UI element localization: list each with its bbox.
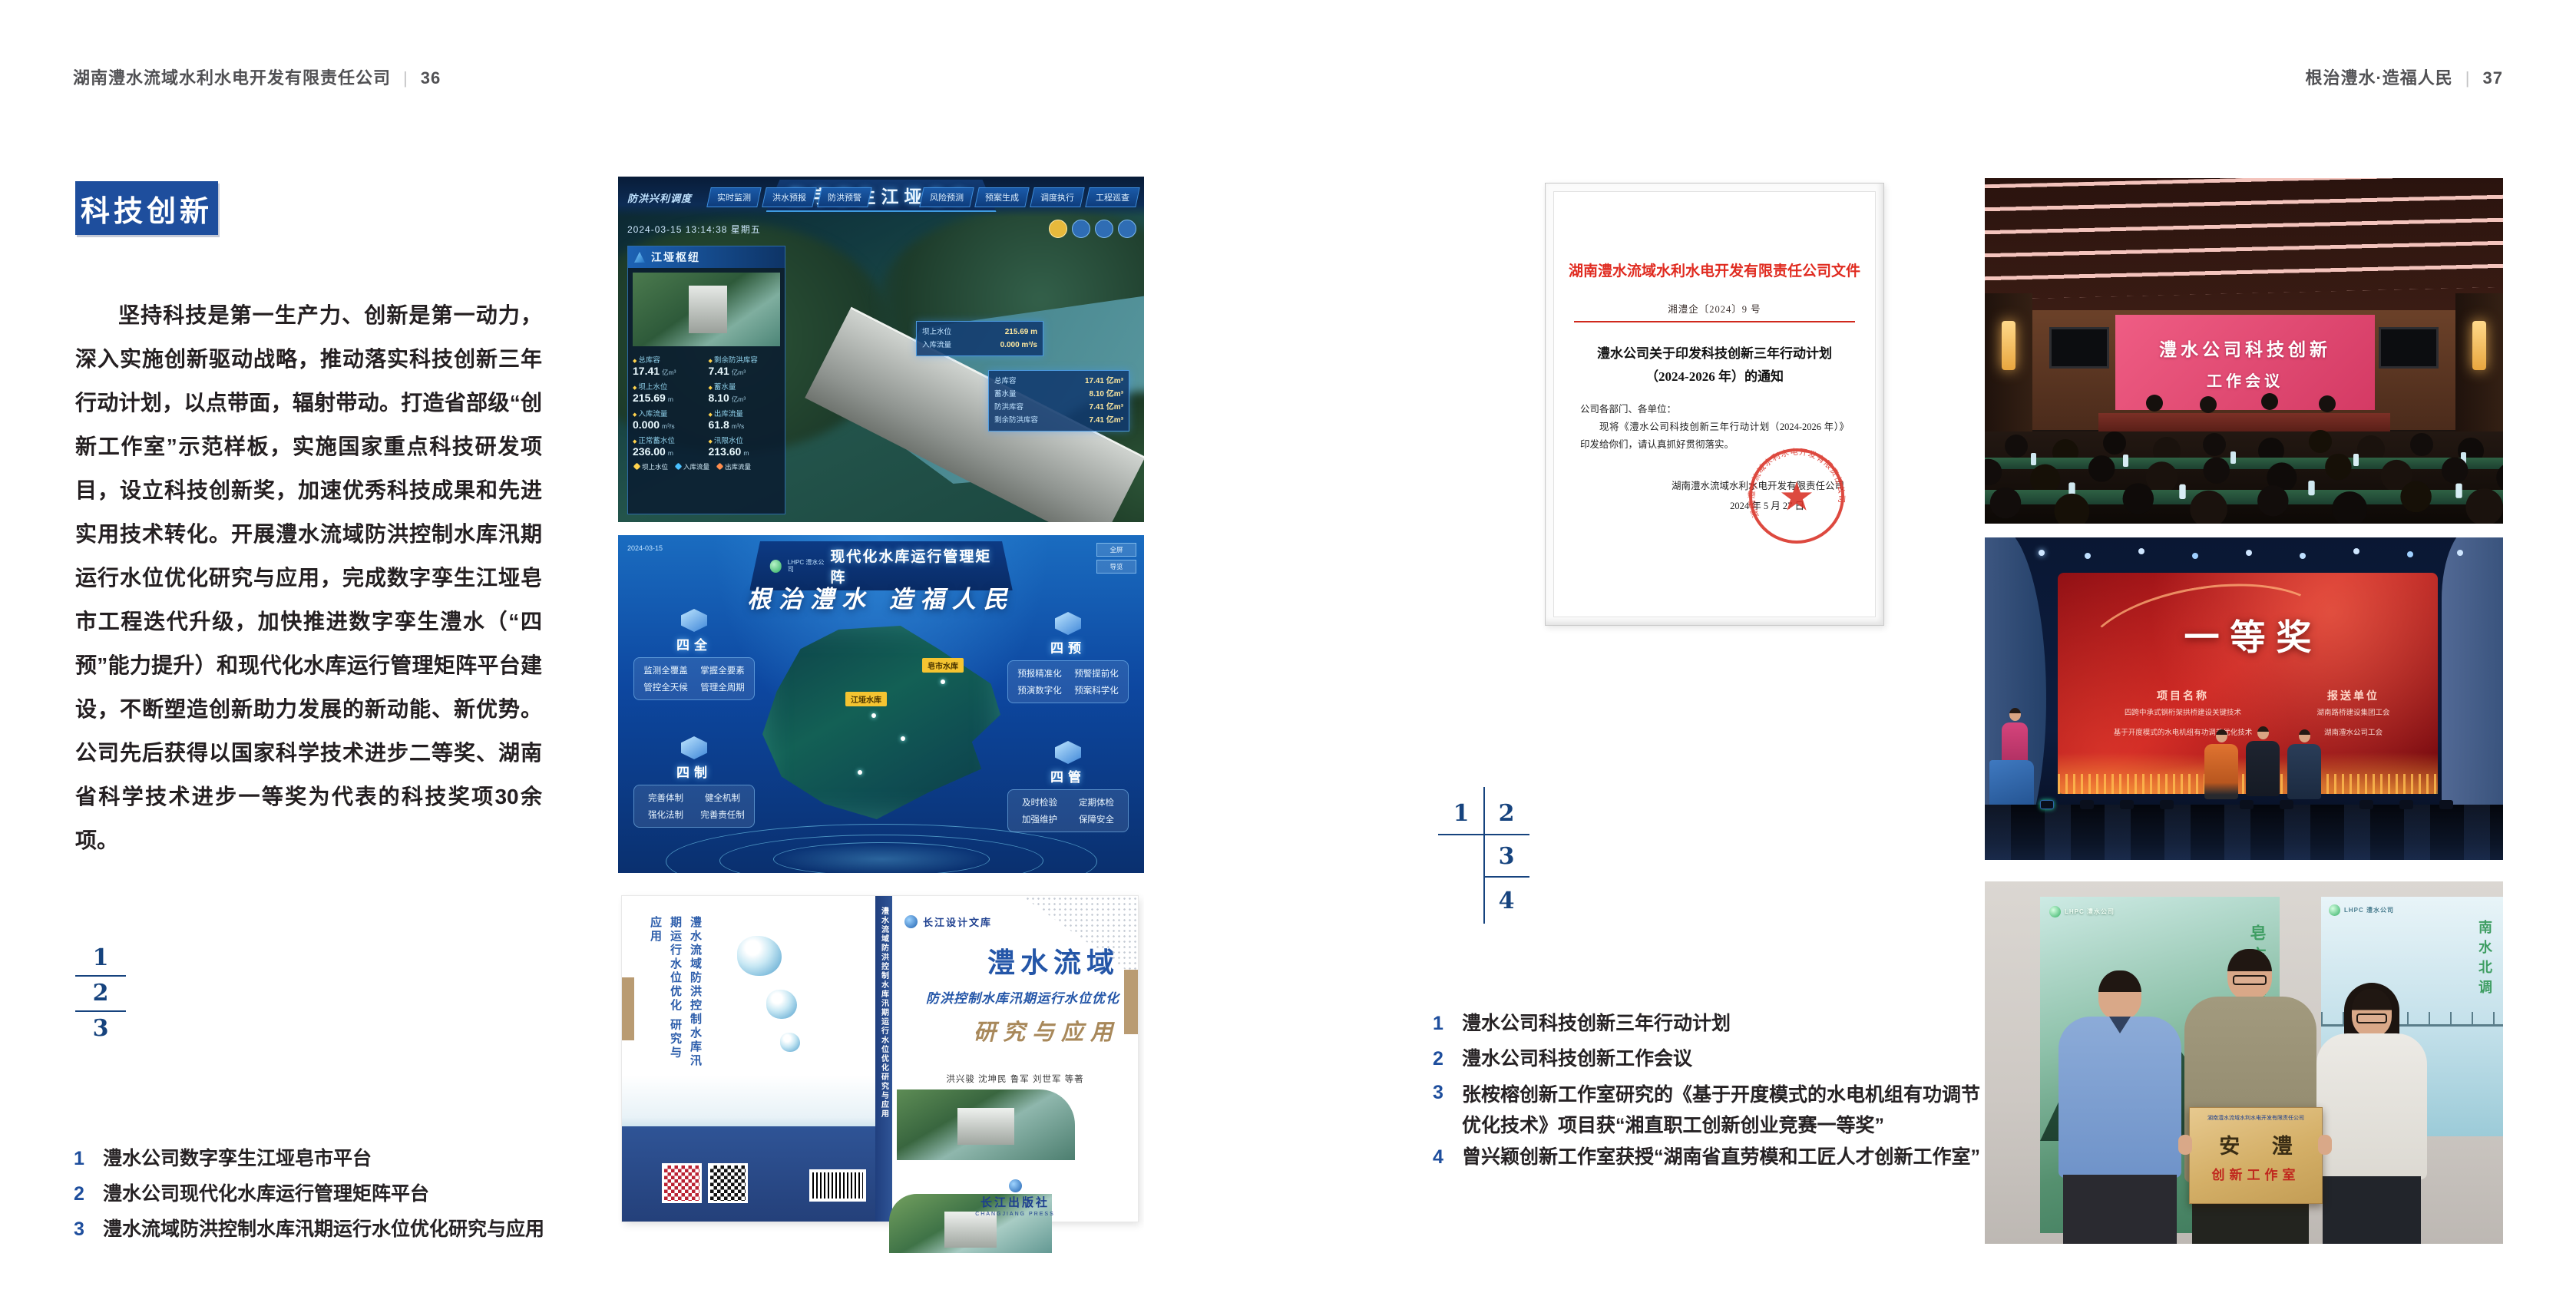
legend-dot (633, 463, 641, 471)
person-body (2058, 1017, 2181, 1178)
left-caption-2: 2 澧水公司现代化水库运行管理矩阵平台 (74, 1181, 429, 1207)
hub-chart-legend: 坝上水位 入库流量 出库流量 (628, 461, 785, 473)
publisher-name: 长江出版社 (980, 1194, 1050, 1210)
plaque-header: 湖南澧水流域水利水电开发有限责任公司 (2190, 1114, 2322, 1122)
poster-calligraphy: 南水北调 (2474, 920, 2494, 1000)
document-number: 湘澧企〔2024〕9 号 (1554, 301, 1875, 316)
figure-digital-twin-platform: 数字孪生江垭皂市 防洪兴利调度 实时监测 洪水预报 防洪预警 风险预测 预案生成… (618, 177, 1144, 522)
stat-upstream-level: 坝上水位215.69m (633, 381, 705, 404)
wall-tv-screen (2379, 327, 2439, 369)
reservoir-marker-dot (901, 736, 905, 741)
person-head (2216, 729, 2227, 742)
hub-panel-header: 江垭枢纽 (628, 246, 785, 268)
publisher-logo-icon (1009, 1179, 1022, 1192)
tab-plan-generation: 预案生成 (974, 187, 1030, 207)
person-body (2204, 744, 2238, 799)
magazine-spread: 湖南澧水流域水利水电开发有限责任公司|36 科技创新 坚持科技是第一生产力、创新… (0, 0, 2576, 1306)
right-caption-3: 3 张桉榕创新工作室研究的《基于开度模式的水电机组有功调节 优化技术》项目获“湘… (1433, 1080, 1999, 1141)
wall-lamp (2002, 321, 2015, 370)
lhpc-logo (769, 560, 782, 573)
locator-divider (1438, 834, 1529, 835)
caption-text: 澧水公司现代化水库运行管理矩阵平台 (103, 1181, 429, 1207)
locate-icon (1095, 220, 1113, 238)
dashboard-top-bar: 数字孪生江垭皂市 防洪兴利调度 实时监测 洪水预报 防洪预警 风险预测 预案生成… (618, 177, 1144, 217)
stat-remaining-flood-capacity: 剩余防洪库容7.41亿m³ (709, 354, 781, 377)
press-logo-icon (904, 915, 918, 928)
locator-number: 1 (1448, 797, 1474, 831)
stage-floor (1985, 805, 2503, 860)
figure-official-document: 湖南澧水流域水利水电开发有限责任公司文件 湘澧企〔2024〕9 号 澧水公司关于… (1545, 183, 1884, 626)
person-body (2246, 741, 2280, 796)
green-desk-row (1985, 458, 2503, 469)
qr-code (708, 1163, 748, 1203)
module-label: 防洪兴利调度 (627, 190, 692, 205)
awardee-navy (2287, 729, 2321, 799)
person-head (2352, 989, 2392, 1037)
stat-storage: 蓄水量8.10亿m³ (709, 381, 781, 404)
left-caption-3: 3 澧水流域防洪控制水库汛期运行水位优化研究与应用 (74, 1216, 544, 1242)
right-header-title: 根治澧水·造福人民 (2305, 68, 2452, 88)
water-droplet (737, 936, 782, 976)
figure-matrix-platform: 2024-03-15 全屏 导览 LHPC 澧水公司 现代化水库运行管理矩阵 根… (618, 535, 1144, 873)
stat-flood-limit-level: 汛限水位213.60m (709, 435, 781, 458)
dashboard-tabs-left: 实时监测 洪水预报 防洪预警 (709, 187, 870, 207)
lhpc-logo: LHPC 澧水公司 (2329, 904, 2394, 916)
book-spine: 澧水流域防洪控制水库汛期运行水位优化研究与应用 (875, 896, 892, 1222)
stat-normal-level: 正常蓄水位236.00m (633, 435, 705, 458)
holding-hand (2178, 1135, 2192, 1155)
matrix-group-siquan: 四全 监测全覆盖掌握全要素 管控全天候管理全周期 (633, 609, 755, 700)
left-page-header: 湖南澧水流域水利水电开发有限责任公司|36 (73, 64, 441, 89)
tab-dispatch-execution: 调度执行 (1030, 187, 1085, 207)
stage-spotlights (2039, 550, 2045, 556)
tour-button: 导览 (1096, 560, 1136, 574)
green-desk-row (1985, 490, 2503, 504)
series-logo: 长江设计文库 (904, 914, 992, 929)
matrix-toolbar: 全屏 导览 (1096, 543, 1136, 577)
caption-text: 曾兴颖创新工作室获授“湖南省直劳模和工匠人才创新工作室” (1462, 1144, 1980, 1170)
cube-icon (681, 736, 707, 759)
caption-number: 3 (74, 1216, 91, 1242)
floor-reflections (1985, 805, 2503, 860)
water-bottles (2068, 482, 2075, 497)
right-caption-4: 4 曾兴颖创新工作室获授“湖南省直劳模和工匠人才创新工作室” (1433, 1144, 1980, 1170)
seal-star-icon (1781, 481, 1812, 511)
rostrum-table (2098, 413, 2390, 431)
front-cover-titles: 澧水流域 防洪控制水库汛期运行水位优化 研究与应用 (900, 941, 1119, 1046)
award-project-column: 项目名称 四跨中承式钢桁架拱桥建设关键技术 基于开度模式的水电机组有功调节优化技… (2095, 688, 2271, 743)
caption-text: 澧水公司数字孪生江垭皂市平台 (103, 1146, 372, 1172)
caption-number: 2 (1433, 1046, 1450, 1072)
audience-area (1985, 431, 2503, 524)
matrix-datetime: 2024-03-15 (627, 544, 663, 552)
reservoir-marker-dot (941, 679, 945, 684)
dam-shape (689, 286, 727, 332)
caption-number: 1 (1433, 1010, 1450, 1037)
glasses-icon (2356, 1013, 2387, 1023)
red-rule (1574, 321, 1855, 322)
locator-number: 1 (75, 941, 126, 975)
section-title: 科技创新 (75, 181, 218, 235)
book-title-main: 澧水流域 (900, 941, 1119, 980)
matrix-group-sizhi: 四制 完善体制健全机制 强化法制完善责任制 (633, 736, 755, 828)
locator-number: 2 (1493, 797, 1519, 831)
reservoir-marker-dot (871, 713, 876, 718)
right-header-separator: | (2465, 68, 2471, 88)
wall-tv-screen (2049, 327, 2109, 369)
right-page-number: 37 (2483, 68, 2503, 88)
person-trousers (2323, 1176, 2421, 1244)
figure-award-ceremony-photo: 一等奖 项目名称 四跨中承式钢桁架拱桥建设关键技术 基于开度模式的水电机组有功调… (1985, 537, 2503, 860)
left-caption-1: 1 澧水公司数字孪生江垭皂市平台 (74, 1146, 372, 1172)
award-title: 一等奖 (2058, 610, 2438, 660)
dashboard-tabs-right: 风险预测 预案生成 调度执行 工程巡查 (921, 187, 1138, 207)
book-spread: 澧水流域防洪控制水库汛期运行水位优化 研究与应用 澧水流域防洪控制水库汛期运行水… (622, 896, 1138, 1222)
map-popup-levels: 坝上水位215.69 m 入库流量0.000 m³/s (916, 321, 1043, 356)
legend-dot (716, 463, 724, 471)
person-head (2227, 949, 2272, 1000)
person-body (2316, 1033, 2427, 1179)
fullscreen-button: 全屏 (1096, 543, 1136, 557)
tab-flood-warning: 防洪预警 (817, 187, 872, 207)
locator-divider (1483, 876, 1529, 878)
document-title: 澧水公司关于印发科技创新三年行动计划 （2024-2026 年）的通知 (1572, 342, 1857, 388)
book-title-sub: 防洪控制水库汛期运行水位优化 (900, 987, 1119, 1007)
dashboard-hud-icons (1044, 220, 1136, 242)
cover-accent-bar (622, 977, 634, 1040)
caption-text: 澧水公司科技创新工作会议 (1462, 1046, 1692, 1072)
right-caption-2: 2 澧水公司科技创新工作会议 (1433, 1046, 1692, 1072)
publisher-mark: 长江出版社 CHANGJIANG PRESS (900, 1179, 1130, 1217)
lhpc-logo-icon (2049, 906, 2061, 918)
barcode (809, 1169, 866, 1202)
locator-number: 3 (1493, 841, 1519, 872)
figure-innovation-studio-photo: LHPC 澧水公司 皂市水库 LHPC 澧水公司 南水北调 (1985, 881, 2503, 1244)
left-header-company: 湖南澧水流域水利水电开发有限责任公司 (73, 68, 391, 88)
layers-icon (1072, 220, 1090, 238)
dam-shape (944, 1212, 997, 1248)
reservoir-marker-dot (858, 770, 862, 775)
reservoir-label-jiangya: 江垭水库 (845, 692, 887, 706)
figure-meeting-photo: 澧水公司科技创新 工作会议 (1985, 178, 2503, 524)
audience-heads (2005, 435, 2028, 458)
locator-number: 4 (1493, 884, 1519, 918)
right-page-header: 根治澧水·造福人民|37 (2305, 64, 2503, 89)
figure-book-cover: 澧水流域防洪控制水库汛期运行水位优化 研究与应用 澧水流域防洪控制水库汛期运行水… (618, 888, 1144, 1253)
back-cover-title: 澧水流域防洪控制水库汛期运行水位优化 研究与应用 (645, 916, 705, 1070)
locator-number: 3 (75, 1012, 126, 1046)
meeting-ceiling (1985, 178, 2503, 310)
dam-aerial-thumbnail (633, 273, 780, 346)
left-header-separator: | (403, 68, 408, 88)
ripple-core (773, 842, 990, 873)
document-sheet: 湖南澧水流域水利水电开发有限责任公司文件 湘澧企〔2024〕9 号 澧水公司关于… (1553, 191, 1876, 617)
book-authors: 洪兴骏 沈坤民 鲁军 刘世军 等著 (892, 1073, 1138, 1085)
reservoir-label-zaoshi: 皂市水库 (922, 658, 964, 673)
lhpc-logo-icon (2329, 904, 2340, 916)
person-head (2098, 970, 2141, 1020)
cube-icon (1055, 612, 1081, 635)
ceiling-light-strips (1985, 178, 2503, 300)
water-droplet (766, 990, 797, 1019)
left-page-number: 36 (421, 68, 441, 88)
stat-outflow: 出库流量61.8m³/s (709, 408, 781, 431)
presenter-suit (2246, 726, 2280, 796)
lhpc-logo-text: LHPC 澧水公司 (788, 559, 825, 573)
publisher-name-en: CHANGJIANG PRESS (975, 1212, 1055, 1217)
holding-hand (2318, 1135, 2332, 1155)
water-bottles (2031, 453, 2036, 465)
cube-icon (681, 609, 707, 632)
qr-code (662, 1163, 702, 1203)
caption-text: 张桉榕创新工作室研究的《基于开度模式的水电机组有功调节 优化技术》项目获“湘直职… (1462, 1080, 1999, 1141)
book-front-cover: 长江设计文库 澧水流域 防洪控制水库汛期运行水位优化 研究与应用 洪兴骏 沈坤民… (892, 896, 1138, 1222)
person-head (2257, 726, 2269, 739)
spine-title: 澧水流域防洪控制水库汛期运行水位优化研究与应用 (878, 907, 890, 1214)
locator-divider (1483, 787, 1485, 924)
lhpc-logo: LHPC 澧水公司 (2049, 906, 2115, 918)
person-head (2299, 729, 2310, 742)
cover-accent-bar (1124, 970, 1138, 1034)
locator-number: 2 (75, 977, 126, 1010)
compass-icon (1118, 220, 1136, 238)
awardee-orange (2204, 729, 2238, 799)
tab-realtime-monitoring: 实时监测 (706, 187, 762, 207)
caption-number: 2 (74, 1181, 91, 1207)
person-body (2287, 744, 2321, 799)
matrix-group-siguan: 四管 及时检验定期体检 加强维护保障安全 (1007, 741, 1129, 832)
legend-dot (675, 463, 683, 471)
caption-number: 3 (1433, 1080, 1450, 1106)
stat-total-capacity: 总库容17.41亿m³ (633, 354, 705, 377)
caption-text: 澧水流域防洪控制水库汛期运行水位优化研究与应用 (103, 1216, 544, 1242)
screen-title-line2: 工作会议 (2207, 369, 2283, 391)
watershed-map (762, 626, 1000, 819)
left-figure-locator: 1 2 3 (75, 941, 126, 1046)
right-caption-1: 1 澧水公司科技创新三年行动计划 (1433, 1010, 1731, 1037)
caption-text: 澧水公司科技创新三年行动计划 (1462, 1010, 1731, 1037)
audience-heads (1990, 488, 2022, 519)
caption-number: 4 (1433, 1144, 1450, 1170)
plaque-sub-title: 创新工作室 (2190, 1164, 2322, 1183)
wall-lamp (2472, 321, 2486, 370)
hub-stats-grid: 总库容17.41亿m³ 剩余防洪库容7.41亿m³ 坝上水位215.69m 蓄水… (628, 351, 785, 461)
dam-shape (957, 1108, 1014, 1145)
book-back-cover: 澧水流域防洪控制水库汛期运行水位优化 研究与应用 (622, 896, 875, 1222)
glasses-icon (2233, 975, 2267, 985)
document-red-heading: 湖南澧水流域水利水电开发有限责任公司文件 (1554, 260, 1875, 280)
studio-plaque: 湖南澧水流域水利水电开发有限责任公司 安 澧 创新工作室 (2189, 1107, 2323, 1204)
person-head (2009, 708, 2021, 721)
tab-risk-forecast: 风险预测 (919, 187, 974, 207)
intro-paragraph: 坚持科技是第一生产力、创新是第一动力，深入实施创新驱动战略，推动落实科技创新三年… (75, 293, 542, 862)
tab-flood-forecast: 洪水预报 (762, 187, 817, 207)
plaque-main-title: 安 澧 (2190, 1129, 2322, 1159)
caption-number: 1 (74, 1146, 91, 1172)
matrix-group-siyu: 四预 预报精准化预警提前化 预演数字化预案科学化 (1007, 612, 1129, 703)
stat-inflow: 入库流量0.000m³/s (633, 408, 705, 431)
person-trousers (2063, 1175, 2177, 1244)
water-logo-icon (634, 252, 645, 263)
tab-project-inspection: 工程巡查 (1085, 187, 1140, 207)
hub-panel-title: 江垭枢纽 (651, 250, 700, 265)
book-title-tail: 研究与应用 (900, 1014, 1119, 1046)
map-popup-capacity: 总库容17.41 亿m³ 蓄水量8.10 亿m³ 防洪库容7.41 亿m³ 剩余… (988, 370, 1129, 431)
rostrum-speakers (2146, 395, 2163, 412)
dashboard-datetime: 2024-03-15 13:14:38 星期五 (627, 223, 761, 236)
cube-icon (1055, 741, 1081, 764)
water-droplet (780, 1033, 800, 1052)
screen-title-line1: 澧水公司科技创新 (2159, 335, 2331, 361)
dam-photo (897, 1089, 1075, 1160)
official-seal: 湖南澧水流域水利水电开发有限责任公司 (1746, 445, 1847, 547)
moving-head-lights (2040, 800, 2054, 809)
hub-info-panel: 江垭枢纽 总库容17.41亿m³ 剩余防洪库容7.41亿m³ 坝上水位215.6… (627, 246, 785, 514)
alert-icon (1049, 220, 1067, 238)
